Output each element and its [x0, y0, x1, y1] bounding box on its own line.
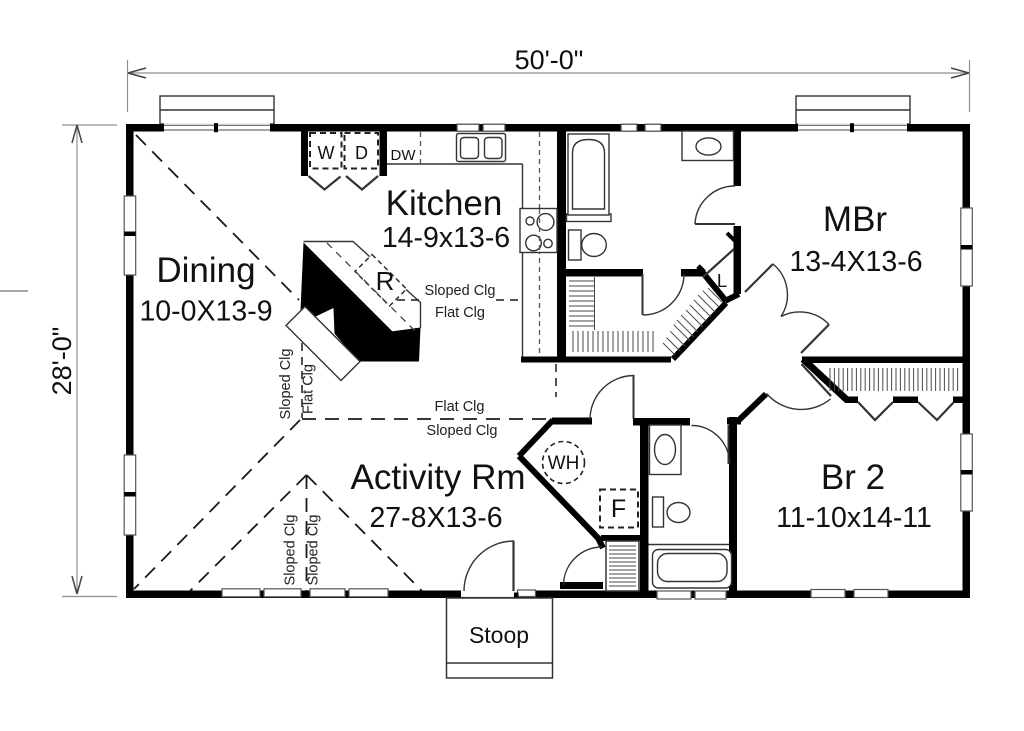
svg-text:Flat Clg: Flat Clg — [301, 364, 317, 414]
svg-text:Br 2: Br 2 — [821, 458, 885, 497]
svg-text:Sloped Clg: Sloped Clg — [306, 515, 322, 586]
svg-text:W: W — [318, 143, 335, 163]
svg-text:50'-0": 50'-0" — [515, 45, 584, 75]
svg-text:DW: DW — [391, 147, 417, 164]
svg-text:11-10x14-11: 11-10x14-11 — [776, 502, 932, 534]
svg-text:27-8X13-6: 27-8X13-6 — [369, 502, 502, 534]
svg-text:14-9x13-6: 14-9x13-6 — [382, 222, 510, 254]
svg-text:R: R — [376, 266, 395, 296]
svg-text:Activity Rm: Activity Rm — [351, 458, 526, 497]
svg-text:10-0X13-9: 10-0X13-9 — [139, 296, 272, 328]
svg-text:Flat Clg: Flat Clg — [435, 305, 485, 321]
svg-text:MBr: MBr — [823, 200, 888, 239]
svg-text:Flat Clg: Flat Clg — [435, 399, 485, 415]
svg-text:WH: WH — [548, 453, 580, 474]
svg-text:Dining: Dining — [156, 251, 255, 290]
svg-text:Sloped Clg: Sloped Clg — [425, 283, 496, 299]
svg-text:13-4X13-6: 13-4X13-6 — [789, 246, 922, 278]
svg-text:Sloped Clg: Sloped Clg — [283, 515, 299, 586]
svg-text:L: L — [717, 270, 727, 291]
svg-text:Kitchen: Kitchen — [386, 184, 503, 223]
svg-text:Sloped Clg: Sloped Clg — [278, 349, 294, 420]
svg-text:D: D — [355, 143, 368, 163]
svg-text:28'-0": 28'-0" — [47, 327, 77, 396]
svg-text:F: F — [611, 495, 626, 523]
svg-text:Stoop: Stoop — [469, 622, 529, 648]
svg-text:Sloped Clg: Sloped Clg — [427, 423, 498, 439]
